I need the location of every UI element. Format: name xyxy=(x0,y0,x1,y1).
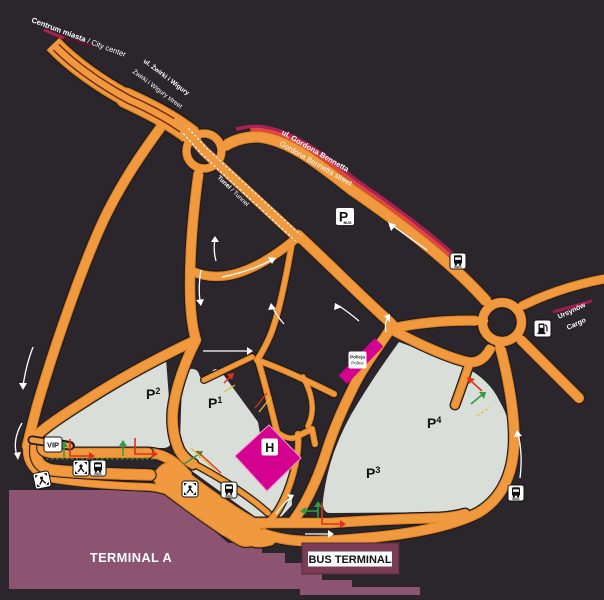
svg-text:Policja: Policja xyxy=(350,355,365,360)
svg-text:TERMINAL A: TERMINAL A xyxy=(90,550,172,565)
svg-text:H: H xyxy=(265,441,274,455)
svg-text:BUS TERMINAL: BUS TERMINAL xyxy=(308,554,391,566)
svg-text:BUS: BUS xyxy=(343,221,351,225)
svg-text:VIP: VIP xyxy=(47,441,59,450)
svg-text:Police: Police xyxy=(351,361,364,366)
